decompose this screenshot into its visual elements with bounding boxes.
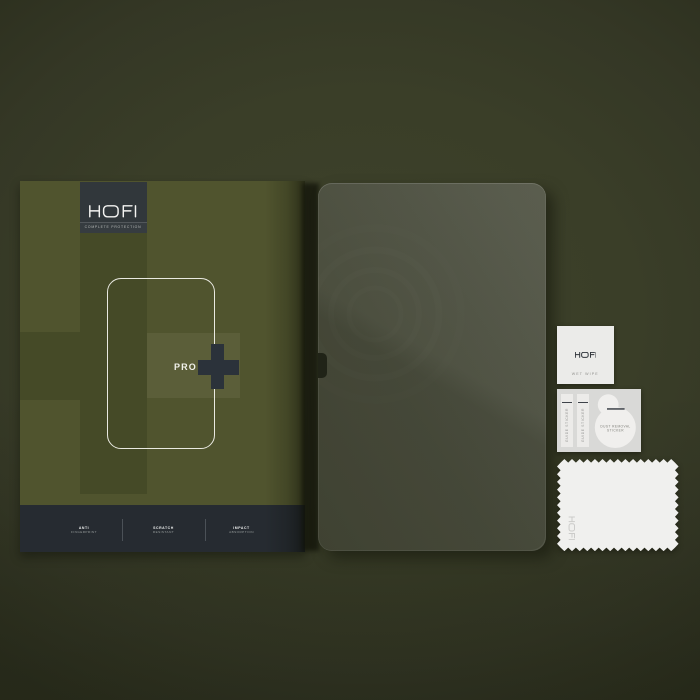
svg-text:STICKER: STICKER <box>607 429 624 433</box>
